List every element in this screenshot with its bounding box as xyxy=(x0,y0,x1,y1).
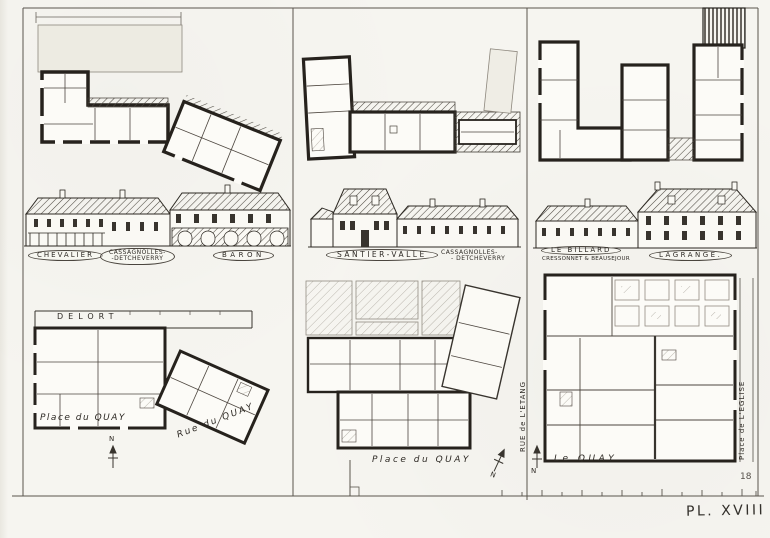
site-plan-delort xyxy=(33,311,268,468)
owner-label-line2: - DETCHEVERRY xyxy=(441,256,505,262)
north-arrow-icon xyxy=(532,446,542,468)
plate-number-label: PL. XVIII xyxy=(686,503,765,519)
floor-plan-detached-left xyxy=(163,95,283,192)
street-label-rue-de-letang: RUE de L'ETANG xyxy=(520,362,527,452)
floor-plans-billard-block xyxy=(538,8,745,160)
elevation-right xyxy=(533,182,757,248)
street-label-place-du-quay-left: Place du QUAY xyxy=(40,414,126,423)
floor-plans-chevalier-block xyxy=(36,12,283,192)
elevation-middle xyxy=(308,189,521,247)
site-plan-quay xyxy=(532,275,753,468)
house-label-cassagnolles-detcheverry: CASSAGNOLLES- -DETCHEVERRY xyxy=(100,248,175,265)
street-label-place-de-leglise: Place de L'EGLISE xyxy=(739,350,746,460)
north-label-left: N xyxy=(109,436,114,443)
house-label-le-billard: LE BILLARD xyxy=(541,246,621,255)
street-label-le-quay: Le QUAY xyxy=(554,455,617,464)
street-label-place-du-quay-middle: Place du QUAY xyxy=(372,456,471,465)
house-label-line2: -DETCHEVERRY xyxy=(109,256,166,262)
owner-label-cassagnolles-detcheverry: CASSAGNOLLES- - DETCHEVERRY xyxy=(441,250,505,263)
scale-bar xyxy=(502,489,756,496)
site-plan-santier xyxy=(306,281,520,473)
site-plan-detached-left xyxy=(157,351,268,443)
owner-label-cressonnet-beausejour: CRESSONNET & BEAUSEJOUR xyxy=(542,257,630,263)
north-label-right: N xyxy=(531,468,536,475)
north-arrow-icon xyxy=(108,446,118,468)
survey-plate-sheet: CHEVALIER CASSAGNOLLES- -DETCHEVERRY BAR… xyxy=(0,0,770,538)
plan-owner-label-delort: DELORT xyxy=(57,313,119,321)
floor-plans-santier-block xyxy=(303,49,520,159)
page-number: 18 xyxy=(740,473,751,482)
north-arrow-icon xyxy=(490,447,509,473)
house-label-santier-valle: SANTIER-VALLE xyxy=(326,249,438,261)
elevation-left xyxy=(24,185,291,246)
